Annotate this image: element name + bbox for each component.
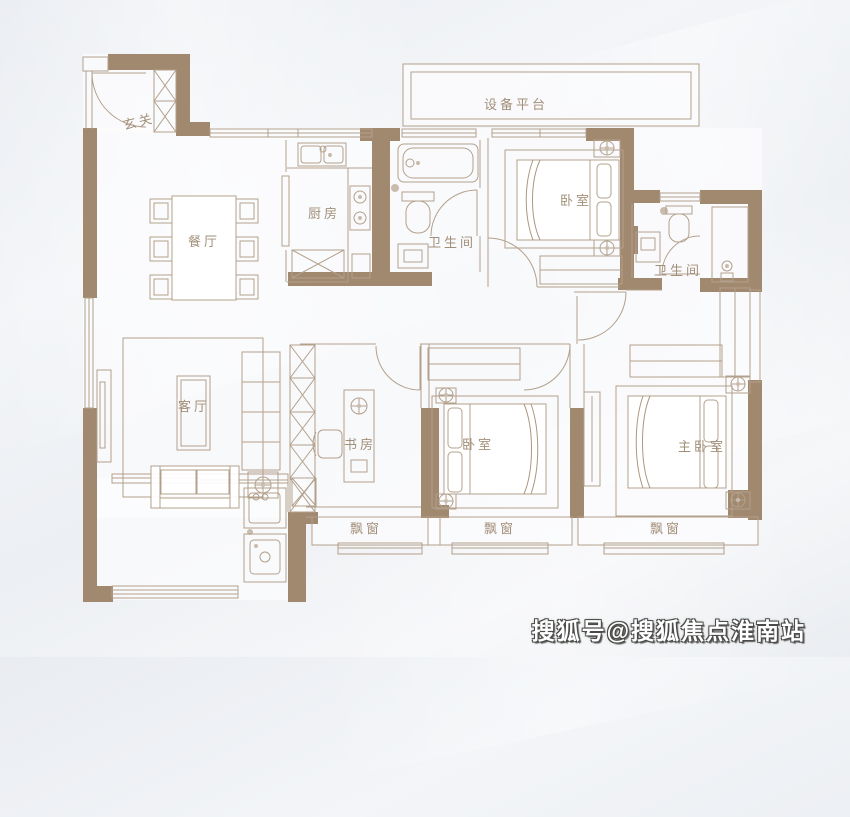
floorplan-page: 餐厅 厨房 设备平台 bbox=[0, 0, 850, 657]
living-room-label: 客厅 bbox=[178, 399, 210, 414]
bed-south bbox=[444, 404, 546, 494]
bedroom-south-label: 卧室 bbox=[462, 437, 494, 452]
bathroom1-label: 卫生间 bbox=[428, 235, 476, 250]
study-label: 书房 bbox=[344, 437, 376, 452]
equipment-platform-label: 设备平台 bbox=[484, 97, 548, 112]
master-bedroom-label: 主卧室 bbox=[678, 439, 726, 454]
bay-window-label: 飘窗 bbox=[650, 521, 682, 536]
equipment-platform: 设备平台 bbox=[484, 97, 548, 112]
bay-window-label: 飘窗 bbox=[484, 521, 516, 536]
bedroom-south: 卧室 bbox=[432, 388, 558, 509]
bay-window-label: 飘窗 bbox=[350, 521, 382, 536]
bathroom2-label: 卫生间 bbox=[654, 263, 702, 278]
kitchen-label: 厨房 bbox=[308, 206, 340, 221]
watermark: 搜狐号@搜狐焦点淮南站 bbox=[532, 612, 806, 646]
floorplan-canvas: 餐厅 厨房 设备平台 bbox=[0, 0, 850, 657]
dining-label: 餐厅 bbox=[188, 234, 220, 249]
bedroom-north-label: 卧室 bbox=[560, 193, 592, 208]
sofa bbox=[151, 466, 239, 508]
